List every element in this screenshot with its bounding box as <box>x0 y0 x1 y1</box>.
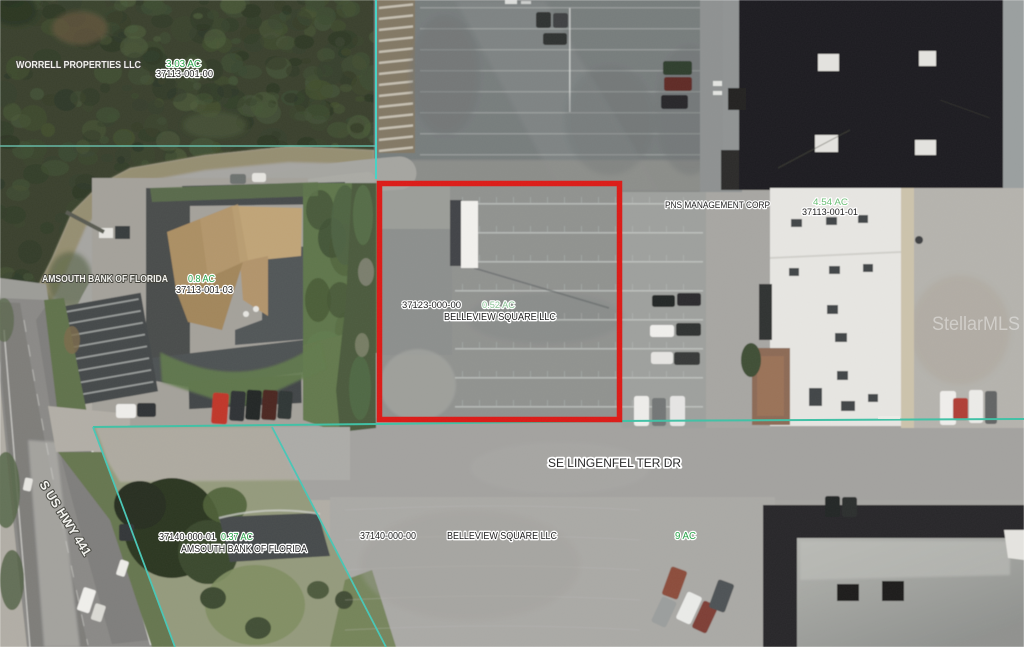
svg-text:BELLEVIEW SQUARE LLC: BELLEVIEW SQUARE LLC <box>444 311 556 323</box>
svg-text:AMSOUTH BANK OF FLORIDA: AMSOUTH BANK OF FLORIDA <box>181 543 307 555</box>
svg-text:37140-000-00: 37140-000-00 <box>360 531 416 542</box>
svg-text:37113-001-01: 37113-001-01 <box>802 207 858 218</box>
svg-text:9 AC: 9 AC <box>675 531 696 542</box>
svg-text:WORRELL PROPERTIES LLC: WORRELL PROPERTIES LLC <box>16 59 141 71</box>
svg-text:37140-000-01: 37140-000-01 <box>159 532 216 543</box>
svg-text:0.8 AC: 0.8 AC <box>188 274 215 285</box>
svg-text:AMSOUTH BANK OF FLORIDA: AMSOUTH BANK OF FLORIDA <box>42 273 168 285</box>
svg-text:37123-000-00: 37123-000-00 <box>402 300 461 311</box>
svg-text:PNS MANAGEMENT CORP: PNS MANAGEMENT CORP <box>665 200 770 211</box>
svg-text:0.37 AC: 0.37 AC <box>221 532 253 543</box>
svg-text:SE LINGENFEL TER DR: SE LINGENFEL TER DR <box>548 456 681 470</box>
svg-text:0.52 AC: 0.52 AC <box>482 300 515 311</box>
svg-text:BELLEVIEW SQUARE LLC: BELLEVIEW SQUARE LLC <box>447 530 557 542</box>
svg-text:StellarMLS: StellarMLS <box>932 314 1020 335</box>
svg-text:37113-001-00: 37113-001-00 <box>156 69 213 80</box>
svg-text:37113-001-03: 37113-001-03 <box>176 285 233 296</box>
